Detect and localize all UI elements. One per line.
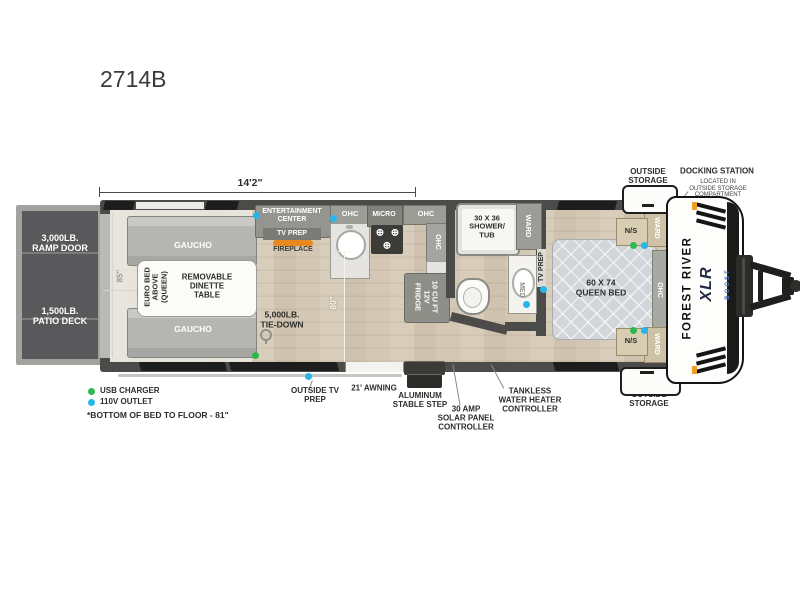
patio-deck-label: 1,500LB. PATIO DECK — [33, 306, 87, 326]
clearance-light-top — [692, 202, 697, 210]
floorplan-canvas: 2714B 14'2" 3,000LB. RAMP DOOR 1,500LB. … — [0, 0, 800, 600]
med-cabinet-label: MED — [517, 282, 525, 298]
window-top-garage — [205, 201, 239, 210]
galley-dim-tick-top — [338, 251, 350, 252]
series-logo-text: XLR — [698, 267, 715, 302]
storage-bottom-handle — [640, 371, 654, 374]
sink-faucet — [346, 225, 353, 229]
legend-outlet-dot — [88, 399, 95, 406]
micro-label: MICRO — [372, 211, 395, 219]
ramp-door-label: 3,000LB. RAMP DOOR — [32, 233, 88, 253]
garage-width-dim-tick — [103, 290, 137, 291]
galley-dim-line — [344, 251, 345, 362]
ohc-2-label: OHC — [418, 210, 435, 218]
storage-top-handle — [642, 204, 654, 207]
rear-garage-opening — [100, 214, 110, 358]
awning-label: 21' AWNING — [351, 385, 397, 394]
fridge-label: 10 CU FT 12V FRIDGE — [413, 281, 438, 314]
outlet-dot-entertainment — [253, 212, 260, 219]
window-bottom-garage — [139, 362, 227, 371]
queen-bed-label: 60 X 74 QUEEN BED — [576, 278, 627, 297]
tie-down-label: 5,000LB. TIE-DOWN — [261, 310, 304, 329]
garage-width-label: 85" — [117, 270, 126, 283]
gaucho-top-label: GAUCHO — [174, 241, 212, 251]
outlet-dot-bed-top — [641, 242, 648, 249]
outlet-dot-bedroom-tv — [540, 286, 547, 293]
slide-rail-top — [136, 202, 204, 209]
outlet-dot-bed-bottom — [641, 327, 648, 334]
legend-usb-dot — [88, 388, 95, 395]
tankless-label: TANKLESS WATER HEATER CONTROLLER — [499, 388, 562, 415]
dinette-label: REMOVABLE DINETTE TABLE — [182, 274, 233, 301]
kitchen-sink — [336, 230, 366, 260]
hitch-arm-bottom — [749, 293, 791, 311]
bedroom-ward-bottom-label: WARD — [652, 333, 660, 354]
usb-dot-bed-top — [630, 242, 637, 249]
fireplace-label: FIREPLACE — [273, 246, 313, 254]
series-logo: XLR BOOST — [698, 267, 734, 302]
bedroom-ward-top-label: WARD — [652, 217, 660, 238]
series-logo-sub: BOOST — [725, 268, 731, 299]
gaucho-bottom-label: GAUCHO — [174, 325, 212, 335]
hitch-crossbar — [758, 271, 763, 301]
nightstand-bottom-label: N/S — [625, 337, 638, 345]
garage-width-dim-line — [112, 214, 113, 358]
bath-wall-left — [446, 205, 455, 298]
legend-outlet-label: 110V OUTLET — [100, 397, 152, 406]
step-tread-1 — [404, 361, 445, 375]
window-top-bedroom — [557, 201, 617, 210]
usb-dot-bed-bottom — [630, 327, 637, 334]
window-bottom-bedroom — [553, 362, 619, 371]
bath-wall-corner — [505, 322, 539, 331]
ohc-side-label: OHC — [433, 234, 441, 250]
bedroom-tv-prep-label: TV PREP — [538, 252, 546, 282]
length-dimension-label: 14'2" — [234, 178, 267, 190]
window-top-rear — [103, 201, 135, 210]
toilet-bowl — [463, 287, 482, 308]
docking-station-label: DOCKING STATION — [680, 168, 754, 177]
shower-label: 30 X 36 SHOWER/ TUB — [469, 214, 505, 239]
usb-dot-living — [252, 352, 259, 359]
bath-ward-label: WARD — [524, 215, 532, 238]
euro-bed-label: EURO BED ABOVE (QUEEN) — [143, 267, 168, 307]
entertainment-label: ENTERTAINMENT CENTER — [262, 208, 321, 224]
nightstand-top-label: N/S — [625, 227, 638, 235]
window-bottom-living — [229, 362, 339, 371]
length-dim-tick-right — [415, 187, 416, 197]
outlet-dot-kitchen — [330, 215, 337, 222]
brand-wordmark: FOREST RIVER — [682, 237, 695, 340]
bed-height-note: *BOTTOM OF BED TO FLOOR - 81" — [87, 411, 229, 421]
page-title: 2714B — [100, 66, 167, 93]
legend-usb-label: USB CHARGER — [100, 386, 160, 395]
length-dimension-line — [99, 192, 416, 193]
galley-dim-label: 80" — [329, 296, 339, 310]
clearance-light-bottom — [692, 366, 697, 374]
length-dim-tick-left — [99, 187, 100, 197]
hitch-jack-line — [742, 258, 745, 314]
step-tread-2 — [407, 374, 442, 388]
burner-icon-1: ⊕ — [376, 227, 384, 238]
tv-prep-label: TV PREP — [277, 230, 307, 238]
ohc-1-label: OHC — [342, 210, 359, 218]
outlet-dot-outside-tv — [305, 373, 312, 380]
tie-down-anchor-stem — [265, 339, 267, 344]
outside-storage-top-label: OUTSIDE STORAGE — [628, 168, 667, 186]
outside-tv-label: OUTSIDE TV PREP — [291, 387, 339, 405]
burner-icon-3: ⊕ — [383, 240, 391, 251]
entry-door-opening — [345, 362, 404, 372]
awning-rail — [118, 374, 402, 377]
solar-label: 30 AMP SOLAR PANEL CONTROLLER — [438, 406, 495, 433]
burner-icon-2: ⊕ — [391, 227, 399, 238]
bed-ohc-label: OHC — [655, 282, 663, 298]
outlet-dot-vanity — [523, 301, 530, 308]
hitch-ball — [790, 280, 800, 292]
